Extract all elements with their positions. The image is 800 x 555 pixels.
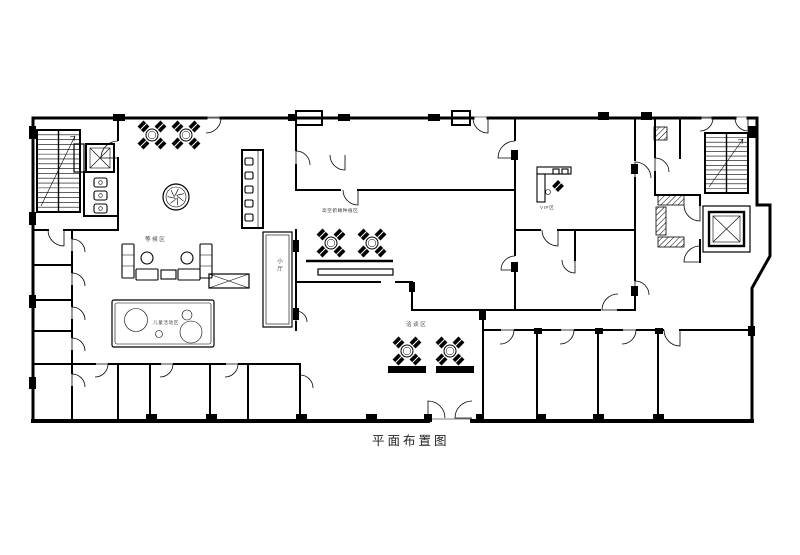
drawing-title: 平面布置图 xyxy=(372,434,450,448)
waiting-sofa-group xyxy=(122,244,212,280)
logo-medallion-icon xyxy=(163,184,189,210)
small-hall-pool xyxy=(263,232,292,327)
stairwell-right-icon xyxy=(705,133,748,193)
label-small-hall: 小厅 xyxy=(276,257,283,273)
reception-counter xyxy=(242,150,263,228)
toilet-fixtures-icon xyxy=(94,178,107,213)
console-cabinet xyxy=(209,274,249,288)
negotiation-benches xyxy=(388,366,474,373)
label-aerial-zone: 高空俯瞰种植区 xyxy=(322,207,358,214)
label-waiting-area: 等候区 xyxy=(145,235,166,243)
floor-plan-sheet: 等候区 高空俯瞰种植区 VIP区 小厅 洽谈区 儿童活动区 平面布置图 xyxy=(0,0,800,555)
label-negotiation-zone: 洽谈区 xyxy=(406,320,427,328)
dining-tables xyxy=(138,121,465,366)
elevator-right-icon xyxy=(703,206,750,252)
label-vip-zone: VIP区 xyxy=(540,205,554,210)
wall-columns xyxy=(29,112,756,422)
vip-desk xyxy=(537,167,571,202)
label-kids-zone: 儿童活动区 xyxy=(153,319,179,326)
cafe-counter xyxy=(306,261,393,275)
outer-walls xyxy=(33,111,770,421)
floor-plan-drawing: 等候区 高空俯瞰种植区 VIP区 小厅 洽谈区 儿童活动区 平面布置图 xyxy=(0,0,800,555)
